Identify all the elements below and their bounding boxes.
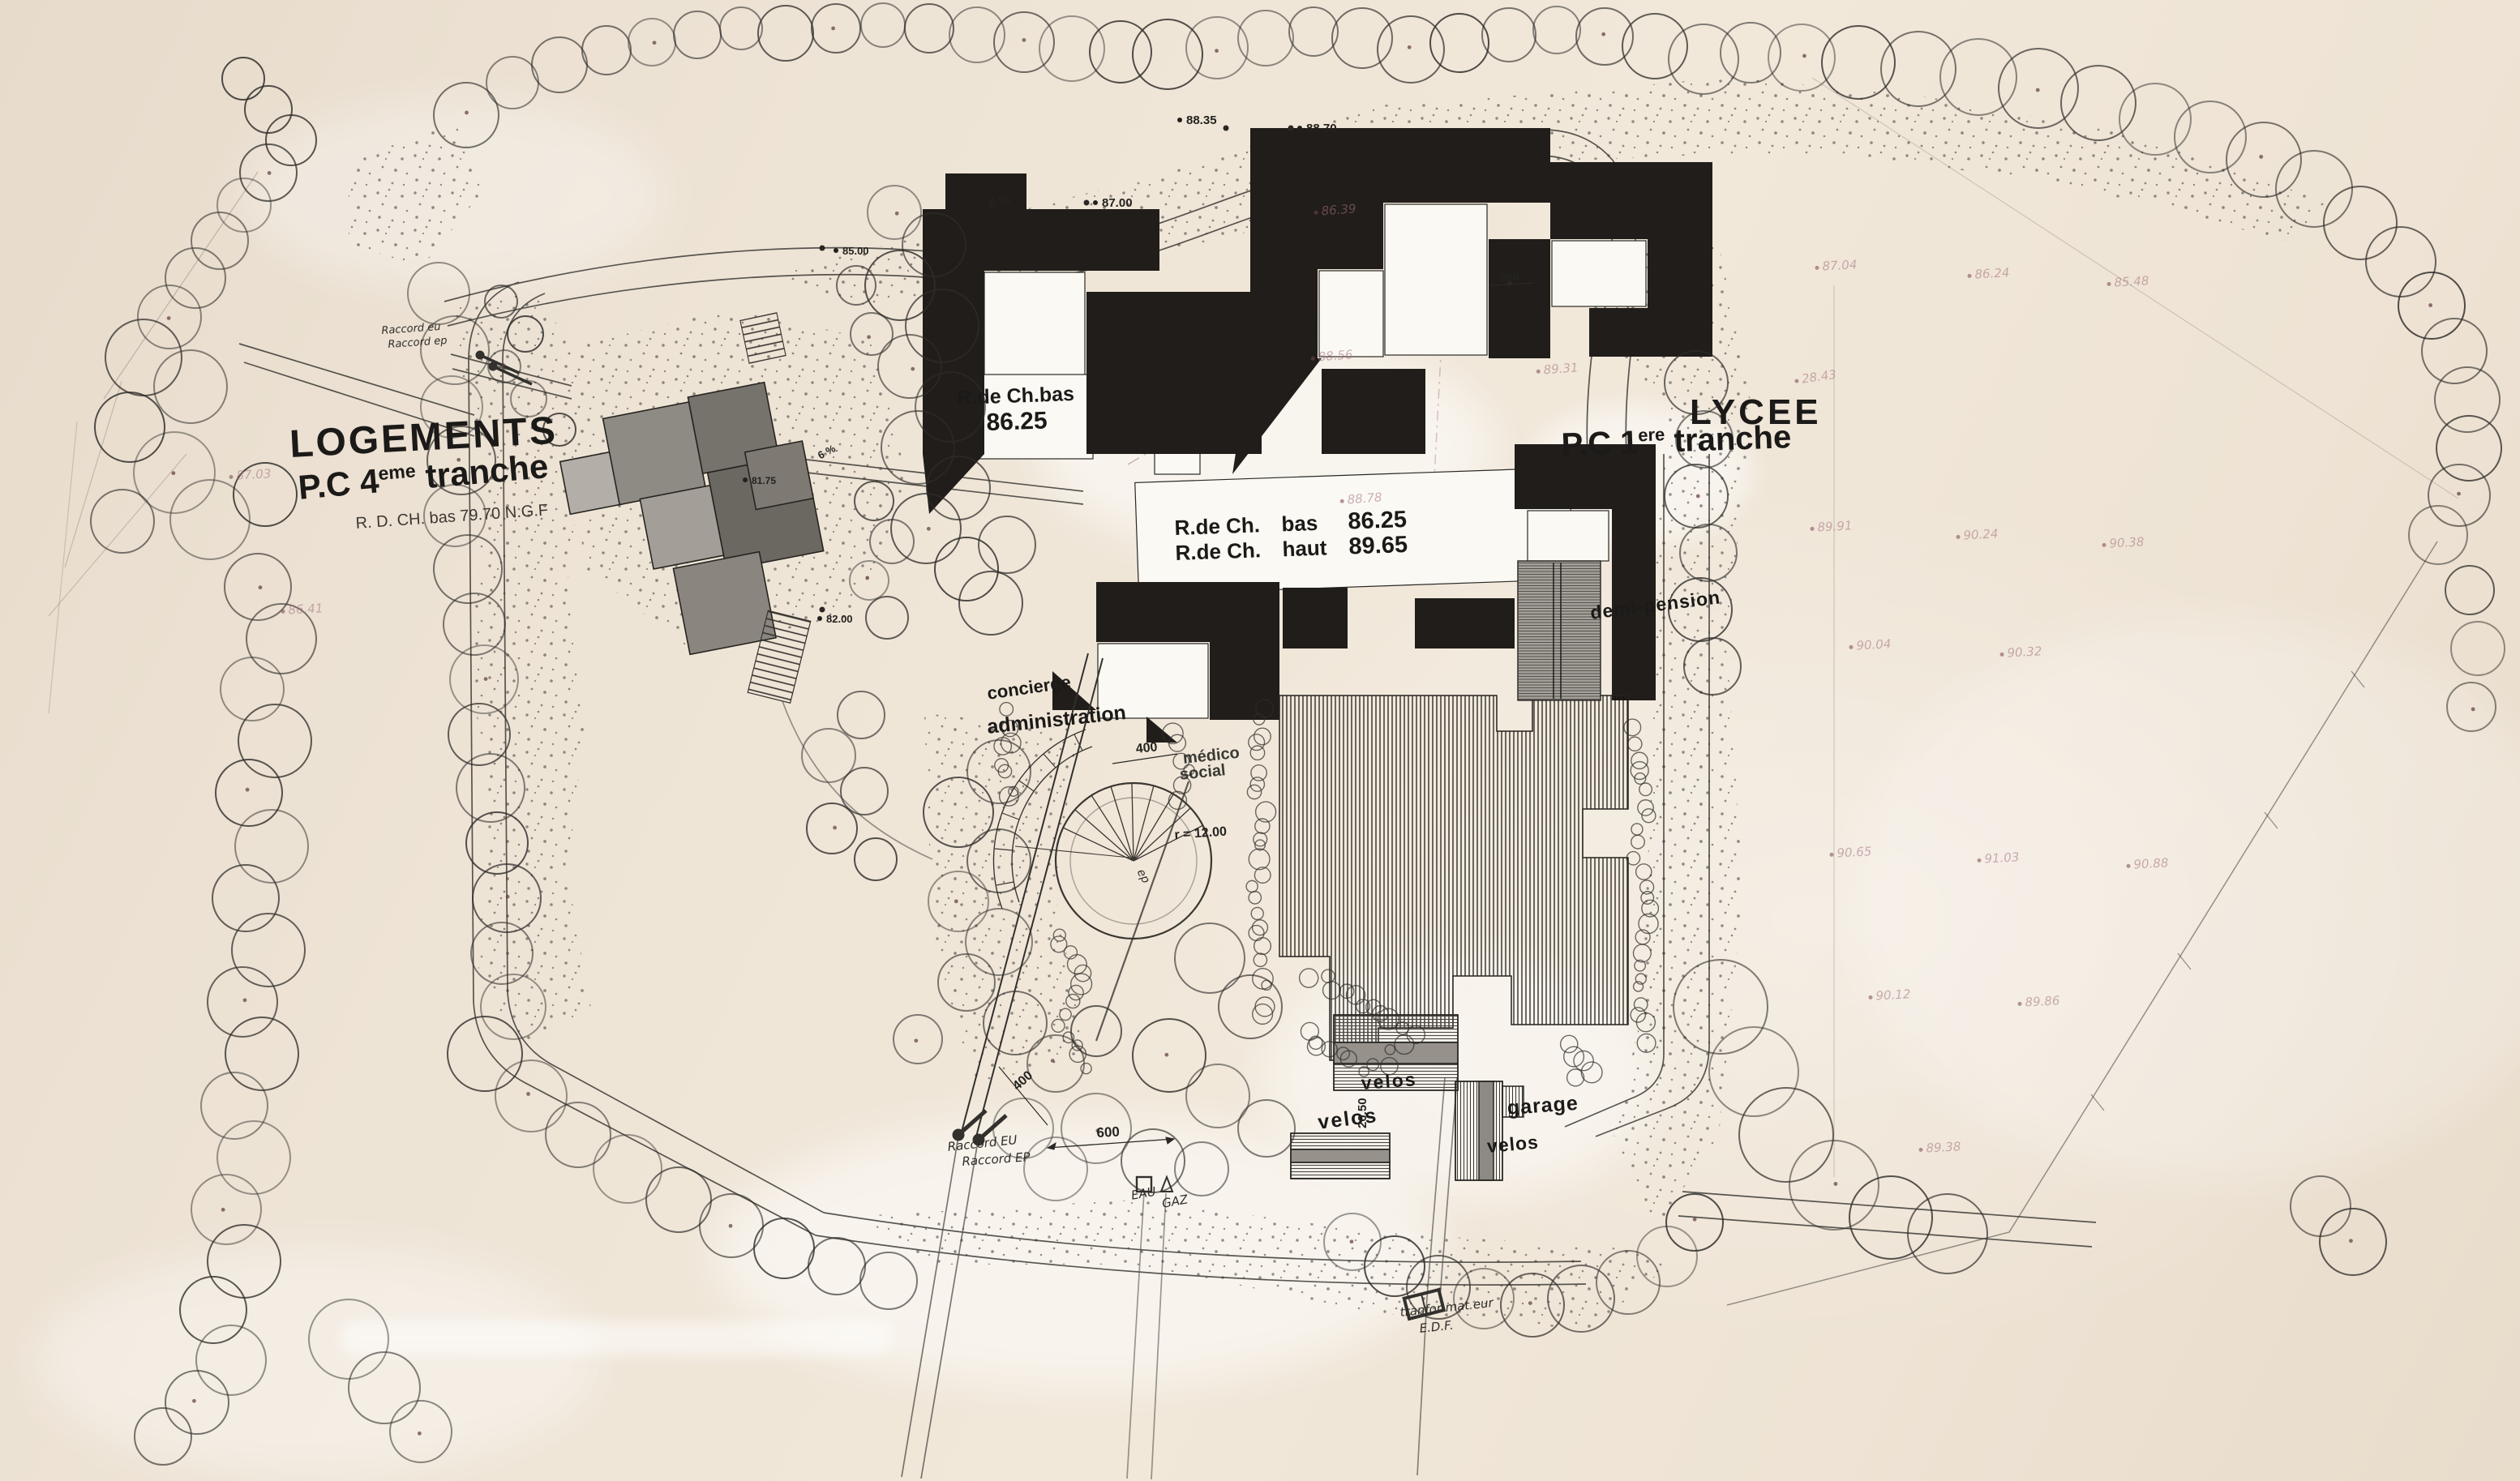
faint-elevation: 89.31: [1536, 360, 1579, 378]
faint-elevation: 86.24: [1967, 265, 2010, 282]
plan-canvas: [0, 0, 2520, 1481]
faint-elevation: 91.03: [1977, 850, 2020, 867]
spot-elevation: 81.75: [743, 475, 776, 486]
label-rdc-west-2: 86.25: [986, 408, 1048, 435]
spot-elevation: 85.00: [834, 245, 869, 257]
rdc-row2-label: R.de Ch.: [1175, 539, 1283, 565]
label-rdc-main: R.de Ch.bas86.25 R.de Ch.haut89.65: [1174, 507, 1408, 566]
faint-elevation: 88.78: [1339, 490, 1382, 507]
rdc-row2-value: 89.65: [1348, 532, 1408, 560]
dimension-label: 400: [1135, 740, 1158, 757]
phase-sup: ere: [1638, 424, 1665, 445]
faint-elevation: 90.88: [2126, 855, 2169, 872]
cour-hatched: [1279, 696, 1628, 1060]
demi-pension-roof: [1518, 561, 1601, 700]
faint-elevation: 90.65: [1829, 844, 1872, 861]
faint-elevation: 90.24: [1956, 526, 1999, 543]
site-plan-sheet: LOGEMENTS P.C 4eme tranche R. D. CH. bas…: [0, 0, 2520, 1481]
faint-elevation: 90.12: [1868, 987, 1911, 1004]
faint-elevation: 89.86: [2017, 993, 2060, 1010]
phase-prefix: P.C 1: [1561, 425, 1639, 463]
faint-elevation: 90.38: [2102, 534, 2145, 551]
spot-elevation: 88.35: [1177, 113, 1217, 127]
faint-elevation: 86.39: [1314, 201, 1356, 219]
faint-elevation: 88.56: [1310, 347, 1353, 365]
label-velos-right: velos: [1486, 1132, 1540, 1156]
faint-elevation: 90.04: [1849, 636, 1892, 653]
velos-shed-left: [1291, 1133, 1390, 1179]
dimension-label: 20.50: [1356, 1098, 1369, 1128]
spot-elevation: 88.70: [1297, 122, 1337, 135]
rdc-row2-mid: haut: [1282, 537, 1349, 561]
phase-sup: eme: [377, 460, 416, 484]
faint-elevation: 86.41: [281, 601, 324, 618]
label-rdc-west-1: R.de Ch.bas: [957, 383, 1074, 409]
west-courtyard-white: [991, 277, 1082, 373]
faint-elevation: 90.32: [1999, 644, 2042, 661]
spot-elevation: 82.00: [817, 613, 853, 625]
faint-elevation: 85.48: [2106, 273, 2149, 290]
dimension-label: 350: [1500, 270, 1519, 284]
rdc-row1-value: 86.25: [1348, 507, 1408, 535]
faint-elevation: 87.04: [1815, 257, 1858, 274]
phase-suffix: tranche: [1665, 419, 1792, 459]
faint-elevation: 89.91: [1810, 518, 1853, 535]
dimension-label: 600: [1096, 1124, 1120, 1141]
spot-elevation: 87.00: [1093, 196, 1133, 210]
title-lycee-phase: P.C 1ere tranche: [1561, 420, 1792, 462]
faint-elevation: 87.03: [229, 466, 272, 483]
rdc-row1-label: R.de Ch.: [1174, 513, 1282, 539]
label-garage: garage: [1506, 1093, 1579, 1119]
faint-elevation: 89.38: [1918, 1139, 1961, 1156]
phase-prefix: P.C 4: [297, 461, 380, 507]
label-velos-top: velos: [1361, 1069, 1417, 1093]
rdc-row1-mid: bas: [1281, 512, 1348, 536]
